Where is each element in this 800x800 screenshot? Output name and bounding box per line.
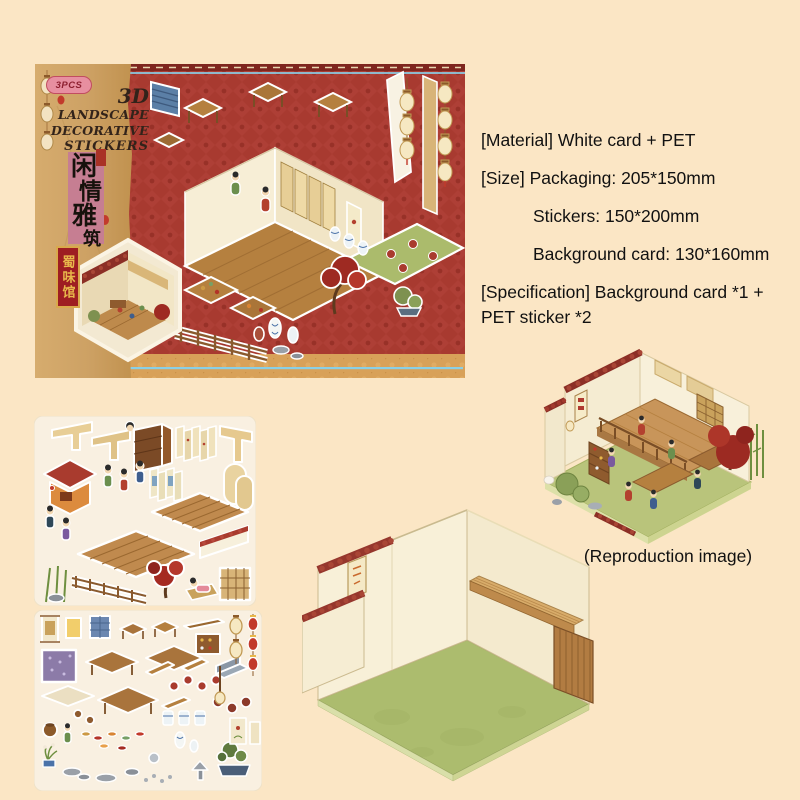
stone (273, 346, 289, 354)
package-title: 3D LANDSCAPE DECORATIVE STICKERS (43, 86, 149, 153)
porcelain-jar (163, 711, 205, 725)
framed-painting (232, 750, 245, 770)
spec-specification: [Specification] Background card *1 + (481, 280, 800, 305)
sticker-sheet-2 (34, 610, 262, 791)
blue-lattice-panel (90, 616, 110, 638)
clay-pot (227, 703, 237, 713)
folding-screen-paintings (150, 468, 182, 501)
framed-painting (230, 718, 260, 744)
yellow-banner (66, 618, 81, 638)
spec-size-stickers: Stickers: 150*200mm (481, 204, 800, 229)
accent-line-top (127, 72, 465, 74)
lantern-icon (248, 614, 258, 676)
accent-line-bottom (127, 367, 463, 369)
clay-pot (241, 697, 251, 707)
wood-stool (74, 710, 82, 718)
spec-material: [Material] White card + PET (481, 128, 800, 153)
spec-size-packaging: [Size] Packaging: 205*150mm (481, 166, 800, 191)
spec-size-background-card: Background card: 130*160mm (481, 242, 800, 267)
purple-wall-panel (42, 650, 76, 682)
watering-can (149, 753, 159, 763)
red-stool (198, 682, 207, 691)
lantern-icon (566, 421, 574, 431)
red-stool (170, 682, 179, 691)
wood-stool (86, 716, 94, 724)
figure-sticker (64, 723, 71, 743)
red-tag (96, 149, 106, 166)
background-card-image (302, 497, 602, 792)
front-left-wall (545, 400, 565, 482)
package-title-line: 3D (43, 86, 149, 106)
product-specs: [Material] White card + PET [Size] Packa… (481, 128, 800, 330)
arch-door-panel (236, 476, 253, 510)
window-panel (220, 568, 250, 600)
package-image: 3PCS 3D LANDSCAPE DECORATIVE STICKERS 闲 … (35, 64, 465, 378)
red-stool (184, 676, 193, 685)
white-cat (544, 476, 554, 484)
package-title-line: LANDSCAPE (43, 109, 149, 122)
sticker-sheet-1 (34, 416, 256, 606)
package-title-line: DECORATIVE (43, 125, 149, 138)
wall-shelf-unit (196, 634, 220, 654)
hanging-scroll (40, 616, 60, 642)
package-chinese-title: 闲 情 雅 筑 (68, 152, 104, 244)
product-detail-composite: 3PCS 3D LANDSCAPE DECORATIVE STICKERS 闲 … (0, 0, 800, 800)
spec-specification-cont: PET sticker *2 (481, 305, 800, 330)
crock (43, 723, 57, 737)
stone (291, 353, 303, 359)
shop-sign-label: 蜀味馆 (56, 246, 80, 308)
window-sticker (151, 82, 179, 116)
folding-screen (176, 426, 216, 461)
